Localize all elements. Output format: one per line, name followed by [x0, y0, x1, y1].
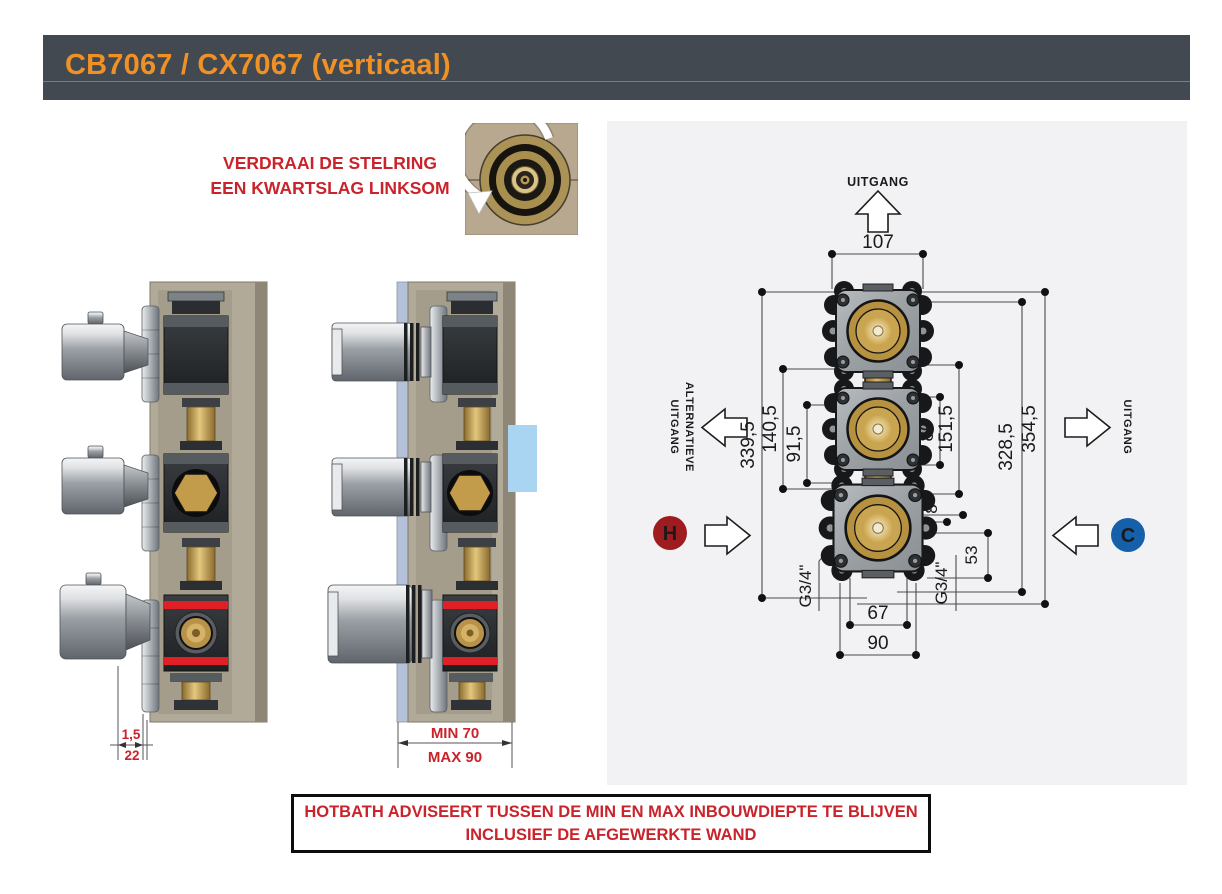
label-outlet-alt-line2: UITGANG [668, 400, 680, 455]
dim-min-depth: MIN 70 [431, 725, 479, 742]
valve-body-bottom [819, 475, 938, 581]
cold-letter: C [1121, 525, 1135, 547]
valve-body-top [822, 281, 934, 381]
hot-arrow-icon [705, 517, 750, 554]
instruction-text: VERDRAAI DE STELRING EEN KWARTSLAG LINKS… [190, 151, 470, 201]
hex-plug [449, 475, 491, 511]
dim-left-mid: 140,5 [760, 405, 781, 453]
label-outlet-right: UITGANG [1121, 400, 1133, 455]
dim-depth: 22 [124, 748, 139, 763]
page-title: CB7067 / CX7067 (verticaal) [65, 49, 451, 82]
side-view-left: 1,5 22 [58, 268, 273, 773]
dim-right-outer: 328,5 [996, 423, 1017, 471]
valve-stack [443, 292, 498, 710]
red-stripe [164, 657, 228, 665]
warning-line1: HOTBATH ADVISEERT TUSSEN DE MIN EN MAX I… [294, 801, 928, 824]
dim-right-inner: 80 [917, 420, 938, 441]
red-stripe [164, 601, 228, 609]
arrow-right-icon [1065, 409, 1110, 446]
label-outlet-alt-line1: ALTERNATIEVE [683, 382, 695, 472]
page: CB7067 / CX7067 (verticaal) VERDRAAI DE … [0, 0, 1222, 894]
handles [60, 312, 150, 659]
instruction-line1: VERDRAAI DE STELRING [190, 151, 470, 176]
finished-wall-tile [508, 425, 537, 492]
mounting-flanges [142, 306, 159, 712]
dim-plate-gap: 1,5 [122, 727, 141, 742]
dim-left-inner: 91,5 [784, 426, 805, 463]
label-outlet-top: UITGANG [847, 175, 909, 189]
dim-width-top: 107 [862, 232, 894, 253]
red-stripe [443, 657, 497, 665]
warning-line2: INCLUSIEF DE AFGEWERKTE WAND [294, 824, 928, 847]
cold-arrow-icon [1053, 517, 1098, 554]
stelring-photo [465, 123, 578, 235]
dim-right-mid: 151,5 [936, 405, 957, 453]
dim-thread-right: G3/4" [932, 562, 951, 605]
dim-bottom-outer: 90 [867, 633, 888, 654]
arrow-up-icon [856, 191, 900, 232]
dim-max-depth: MAX 90 [428, 749, 482, 766]
dim-thread-left: G3/4" [796, 565, 815, 608]
side-view-installed: MIN 70 MAX 90 [318, 268, 543, 773]
red-stripe [443, 601, 497, 609]
dim-offset-small: 8 [922, 504, 941, 513]
valve-stack [164, 292, 228, 710]
dim-right-outermost: 354,5 [1019, 405, 1040, 453]
dim-bottom-inner: 67 [867, 603, 888, 624]
dim-offset-lower: 53 [962, 546, 981, 565]
header-bar: CB7067 / CX7067 (verticaal) [43, 35, 1190, 100]
dim-left-outer: 339,5 [738, 421, 759, 469]
instruction-line2: EEN KWARTSLAG LINKSOM [190, 176, 470, 201]
stelring [480, 135, 570, 225]
warning-box: HOTBATH ADVISEERT TUSSEN DE MIN EN MAX I… [291, 794, 931, 853]
front-view-diagram: UITGANG ALTERNATIEVE UITGANG UITGANG H C… [607, 121, 1187, 785]
hot-letter: H [663, 523, 677, 545]
